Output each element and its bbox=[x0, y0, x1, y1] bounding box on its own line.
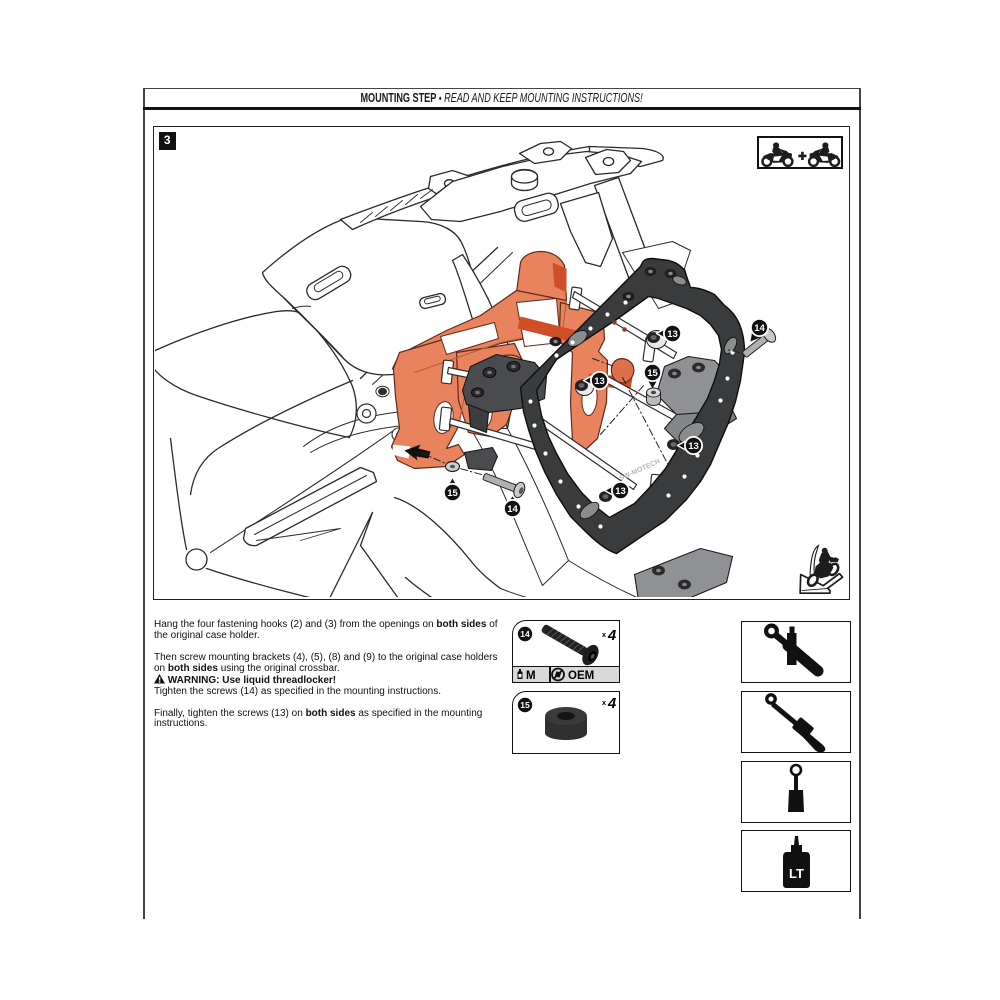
svg-text:14: 14 bbox=[520, 629, 530, 639]
svg-text:15: 15 bbox=[647, 368, 658, 379]
svg-text:13: 13 bbox=[615, 486, 626, 497]
svg-text:4: 4 bbox=[607, 695, 617, 712]
svg-text:14: 14 bbox=[754, 323, 765, 334]
svg-text:13: 13 bbox=[688, 441, 699, 452]
svg-text:14: 14 bbox=[507, 504, 518, 515]
svg-text:LT: LT bbox=[789, 866, 804, 881]
svg-text:15: 15 bbox=[447, 488, 458, 499]
svg-text:x: x bbox=[602, 630, 607, 639]
svg-text:13: 13 bbox=[667, 329, 678, 340]
svg-text:M: M bbox=[526, 670, 536, 682]
svg-text:x: x bbox=[602, 698, 607, 707]
svg-text:15: 15 bbox=[520, 700, 530, 710]
svg-text:OEM: OEM bbox=[568, 670, 594, 682]
svg-text:4: 4 bbox=[607, 627, 617, 644]
svg-text:13: 13 bbox=[594, 376, 605, 387]
